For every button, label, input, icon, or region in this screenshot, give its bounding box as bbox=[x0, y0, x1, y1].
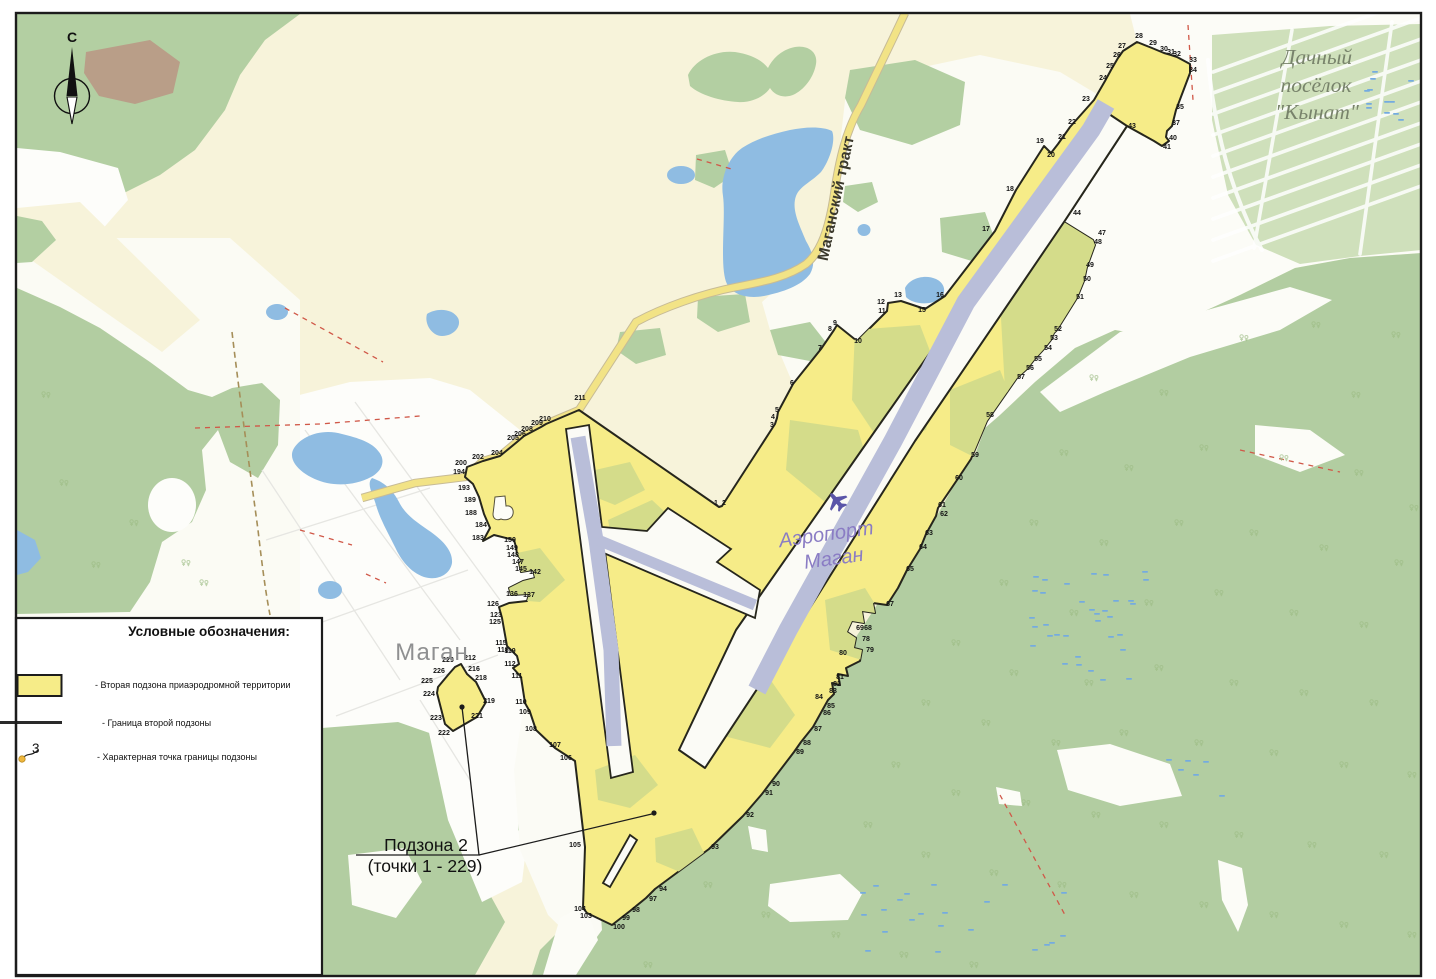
svg-text:225: 225 bbox=[421, 678, 433, 685]
svg-text:222: 222 bbox=[438, 730, 450, 737]
svg-text:188: 188 bbox=[465, 510, 477, 517]
svg-text:52: 52 bbox=[1054, 326, 1062, 333]
svg-text:194: 194 bbox=[453, 469, 465, 476]
svg-text:посёлок: посёлок bbox=[1280, 73, 1352, 97]
svg-text:99: 99 bbox=[622, 915, 630, 922]
svg-text:125: 125 bbox=[489, 619, 501, 626]
svg-text:22: 22 bbox=[1068, 119, 1076, 126]
svg-text:Маган: Маган bbox=[395, 639, 468, 666]
svg-text:97: 97 bbox=[649, 896, 657, 903]
svg-text:145: 145 bbox=[515, 566, 527, 573]
svg-text:10: 10 bbox=[854, 338, 862, 345]
svg-text:56: 56 bbox=[1026, 365, 1034, 372]
svg-text:204: 204 bbox=[491, 450, 503, 457]
svg-text:142: 142 bbox=[529, 569, 541, 576]
svg-text:- Вторая подзона приаэродромно: - Вторая подзона приаэродромной территор… bbox=[95, 680, 290, 690]
svg-text:25: 25 bbox=[1106, 63, 1114, 70]
svg-text:100: 100 bbox=[613, 924, 625, 931]
svg-text:189: 189 bbox=[464, 497, 476, 504]
svg-text:23: 23 bbox=[1082, 96, 1090, 103]
svg-text:19: 19 bbox=[1036, 138, 1044, 145]
svg-text:91: 91 bbox=[765, 790, 773, 797]
svg-text:84: 84 bbox=[815, 694, 823, 701]
svg-text:224: 224 bbox=[423, 691, 435, 698]
svg-text:17: 17 bbox=[982, 226, 990, 233]
svg-text:28: 28 bbox=[1135, 33, 1143, 40]
svg-text:57: 57 bbox=[1017, 374, 1025, 381]
svg-text:108: 108 bbox=[525, 726, 537, 733]
svg-text:29: 29 bbox=[1149, 40, 1157, 47]
svg-text:85: 85 bbox=[827, 703, 835, 710]
svg-text:219: 219 bbox=[483, 698, 495, 705]
svg-text:Условные обозначения:: Условные обозначения: bbox=[128, 624, 290, 639]
svg-text:200: 200 bbox=[455, 460, 467, 467]
svg-text:136: 136 bbox=[506, 591, 518, 598]
svg-text:58: 58 bbox=[986, 412, 994, 419]
svg-text:32: 32 bbox=[1173, 51, 1181, 58]
svg-text:119: 119 bbox=[504, 648, 515, 655]
svg-text:67: 67 bbox=[886, 601, 894, 608]
svg-text:65: 65 bbox=[906, 566, 914, 573]
svg-text:94: 94 bbox=[659, 886, 667, 893]
svg-text:5: 5 bbox=[775, 407, 779, 414]
svg-text:13: 13 bbox=[894, 292, 902, 299]
svg-text:11: 11 bbox=[878, 308, 886, 315]
svg-text:123: 123 bbox=[490, 612, 502, 619]
svg-text:21: 21 bbox=[1058, 134, 1066, 141]
svg-text:50: 50 bbox=[1083, 276, 1091, 283]
svg-text:12: 12 bbox=[877, 299, 885, 306]
svg-text:35: 35 bbox=[1176, 104, 1184, 111]
svg-text:104: 104 bbox=[574, 906, 586, 913]
svg-text:107: 107 bbox=[549, 742, 561, 749]
svg-text:112: 112 bbox=[504, 661, 515, 668]
svg-text:48: 48 bbox=[1094, 239, 1102, 246]
svg-text:55: 55 bbox=[1034, 356, 1042, 363]
svg-text:9: 9 bbox=[833, 320, 837, 327]
svg-text:37: 37 bbox=[1172, 120, 1180, 127]
svg-text:103: 103 bbox=[580, 913, 592, 920]
svg-text:43: 43 bbox=[1128, 123, 1136, 130]
svg-text:98: 98 bbox=[632, 907, 640, 914]
svg-text:109: 109 bbox=[519, 709, 531, 716]
svg-text:34: 34 bbox=[1189, 67, 1197, 74]
svg-text:60: 60 bbox=[955, 475, 963, 482]
svg-text:3: 3 bbox=[770, 422, 774, 429]
svg-text:27: 27 bbox=[1118, 43, 1126, 50]
svg-text:115: 115 bbox=[495, 640, 506, 647]
svg-text:1: 1 bbox=[714, 500, 718, 507]
svg-text:62: 62 bbox=[940, 511, 948, 518]
svg-text:86: 86 bbox=[823, 710, 831, 717]
svg-text:3: 3 bbox=[32, 741, 40, 756]
svg-text:216: 216 bbox=[468, 666, 480, 673]
svg-text:106: 106 bbox=[560, 755, 572, 762]
svg-text:2: 2 bbox=[722, 500, 726, 507]
svg-text:4: 4 bbox=[771, 414, 775, 421]
svg-text:80: 80 bbox=[839, 650, 847, 657]
svg-text:33: 33 bbox=[1189, 57, 1197, 64]
svg-text:(точки 1 - 229): (точки 1 - 229) bbox=[368, 856, 483, 876]
svg-text:126: 126 bbox=[487, 601, 499, 608]
svg-text:61: 61 bbox=[938, 502, 946, 509]
svg-text:105: 105 bbox=[569, 842, 581, 849]
svg-text:53: 53 bbox=[1050, 335, 1058, 342]
svg-text:87: 87 bbox=[814, 726, 822, 733]
svg-text:63: 63 bbox=[925, 530, 933, 537]
svg-text:210: 210 bbox=[539, 416, 551, 423]
svg-text:59: 59 bbox=[971, 452, 979, 459]
svg-text:183: 183 bbox=[472, 535, 484, 542]
svg-text:226: 226 bbox=[433, 668, 445, 675]
svg-text:18: 18 bbox=[1006, 186, 1014, 193]
svg-text:92: 92 bbox=[746, 812, 754, 819]
svg-text:208: 208 bbox=[521, 426, 533, 433]
svg-text:111: 111 bbox=[512, 673, 523, 680]
svg-text:218: 218 bbox=[475, 675, 487, 682]
svg-text:24: 24 bbox=[1099, 75, 1107, 82]
svg-text:51: 51 bbox=[1076, 294, 1084, 301]
svg-text:88: 88 bbox=[803, 740, 811, 747]
svg-text:89: 89 bbox=[796, 749, 804, 756]
svg-text:78: 78 bbox=[862, 636, 870, 643]
svg-text:64: 64 bbox=[919, 544, 927, 551]
svg-text:223: 223 bbox=[430, 715, 442, 722]
svg-text:15: 15 bbox=[918, 307, 926, 314]
svg-text:68: 68 bbox=[864, 625, 872, 632]
svg-text:40: 40 bbox=[1169, 135, 1177, 142]
svg-text:193: 193 bbox=[458, 485, 470, 492]
svg-text:Дачный: Дачный bbox=[1280, 45, 1353, 69]
svg-text:184: 184 bbox=[475, 522, 487, 529]
svg-text:Подзона 2: Подзона 2 bbox=[384, 835, 468, 855]
svg-text:54: 54 bbox=[1044, 345, 1052, 352]
svg-text:147: 147 bbox=[512, 559, 524, 566]
svg-text:8: 8 bbox=[828, 326, 832, 333]
svg-text:49: 49 bbox=[1086, 262, 1094, 269]
svg-text:79: 79 bbox=[866, 647, 874, 654]
svg-text:202: 202 bbox=[472, 454, 484, 461]
svg-text:41: 41 bbox=[1163, 144, 1171, 151]
svg-text:150: 150 bbox=[504, 537, 516, 544]
svg-text:82: 82 bbox=[833, 681, 841, 688]
svg-text:26: 26 bbox=[1113, 52, 1121, 59]
svg-text:81: 81 bbox=[836, 674, 844, 681]
svg-text:16: 16 bbox=[936, 292, 944, 299]
svg-text:47: 47 bbox=[1098, 230, 1106, 237]
svg-text:20: 20 bbox=[1047, 152, 1055, 159]
svg-text:110: 110 bbox=[515, 699, 526, 706]
svg-text:- Граница второй подзоны: - Граница второй подзоны bbox=[102, 718, 211, 728]
svg-text:93: 93 bbox=[711, 844, 719, 851]
svg-text:221: 221 bbox=[471, 713, 483, 720]
svg-text:6: 6 bbox=[790, 380, 794, 387]
svg-text:83: 83 bbox=[829, 688, 837, 695]
svg-text:148: 148 bbox=[507, 552, 519, 559]
svg-text:137: 137 bbox=[523, 592, 535, 599]
svg-text:44: 44 bbox=[1073, 210, 1081, 217]
svg-text:211: 211 bbox=[574, 395, 585, 402]
svg-text:"Кынат": "Кынат" bbox=[1275, 100, 1360, 124]
svg-text:С: С bbox=[67, 29, 77, 45]
svg-text:69: 69 bbox=[856, 625, 864, 632]
svg-text:7: 7 bbox=[818, 345, 822, 352]
svg-text:90: 90 bbox=[772, 781, 780, 788]
svg-text:149: 149 bbox=[506, 545, 518, 552]
svg-text:- Характерная точка границы по: - Характерная точка границы подзоны bbox=[97, 752, 257, 762]
